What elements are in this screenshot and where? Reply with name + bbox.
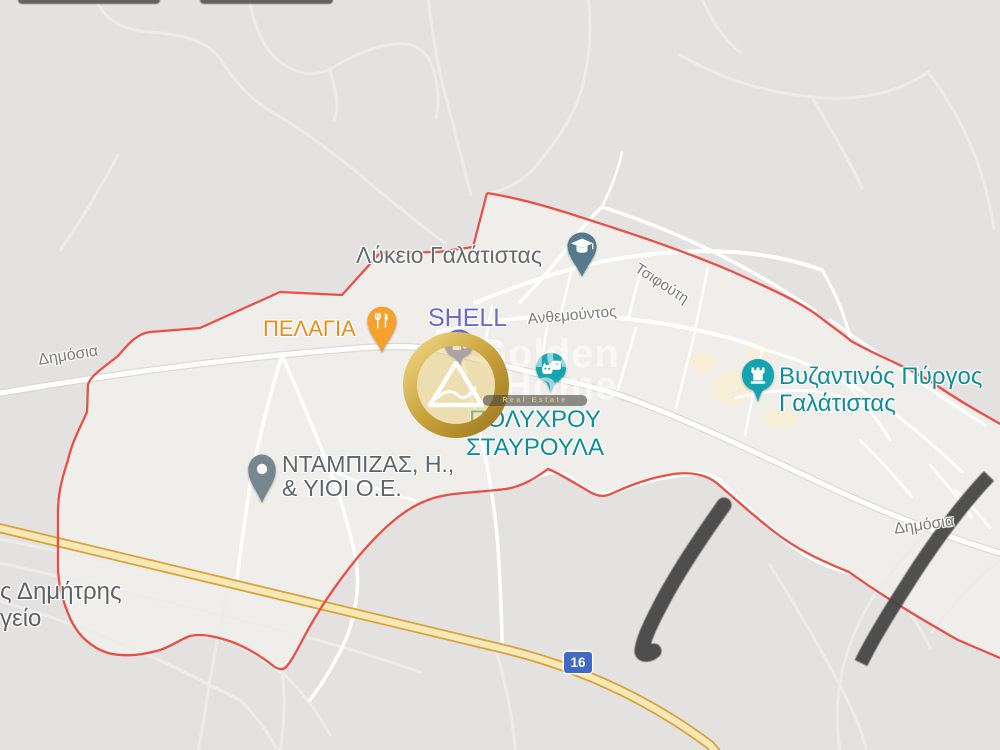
castle-tower-icon bbox=[739, 358, 777, 406]
byzantine-tower-label[interactable]: Βυζαντινός Πύργος Γαλάτιστας bbox=[779, 363, 982, 417]
school-pin[interactable] bbox=[565, 231, 599, 282]
byzantine-tower-pin[interactable] bbox=[739, 358, 777, 411]
shell-label[interactable]: SHELL bbox=[428, 304, 507, 333]
polychrou-label-line1: ΠΟΛΥΧΡΟΥ bbox=[450, 406, 620, 434]
byzantine-tower-label-line2: Γαλάτιστας bbox=[779, 390, 982, 417]
polychrou-label-line2: ΣΤΑΥΡΟΥΛΑ bbox=[450, 434, 620, 462]
polychrou-pin[interactable] bbox=[533, 352, 569, 401]
polychrou-label[interactable]: ΠΟΛΥΧΡΟΥ ΣΤΑΥΡΟΥΛΑ bbox=[450, 406, 620, 462]
restaurant-fork-knife-icon bbox=[365, 305, 399, 353]
school-label[interactable]: Λύκειο Γαλάτιστας bbox=[356, 242, 542, 269]
generic-dot-pin-icon bbox=[246, 452, 278, 504]
ntampizas-pin[interactable] bbox=[246, 452, 278, 509]
shell-pin[interactable] bbox=[442, 328, 476, 377]
ntampizas-label-line1: ΝΤΑΜΠΙΖΑΣ, Η., bbox=[282, 452, 454, 476]
pelagia-pin[interactable] bbox=[365, 305, 399, 358]
byzantine-tower-label-line1: Βυζαντινός Πύργος bbox=[779, 363, 982, 390]
map-canvas[interactable]: Τσιφούτη Ανθεμούντος Δημόσια Δημόσια 16 … bbox=[0, 0, 1000, 750]
dimitris-label-line2: γείο bbox=[0, 605, 122, 632]
dimitris-label-line1: ς Δημήτρης bbox=[0, 578, 122, 605]
graduation-cap-icon bbox=[565, 231, 599, 277]
dimitris-label[interactable]: ς Δημήτρης γείο bbox=[0, 578, 122, 632]
pelagia-label[interactable]: ΠΕΛΑΓΙΑ bbox=[263, 316, 356, 342]
gas-pump-icon bbox=[442, 328, 476, 372]
ntampizas-label[interactable]: ΝΤΑΜΠΙΖΑΣ, Η., & ΥΙΟΙ Ο.Ε. bbox=[282, 452, 454, 500]
pets-icon bbox=[533, 352, 569, 396]
annotation-bar-2 bbox=[200, 0, 333, 4]
annotation-bar-1 bbox=[18, 0, 160, 4]
route-shield-16: 16 bbox=[564, 652, 592, 673]
ntampizas-label-line2: & ΥΙΟΙ Ο.Ε. bbox=[282, 476, 454, 500]
